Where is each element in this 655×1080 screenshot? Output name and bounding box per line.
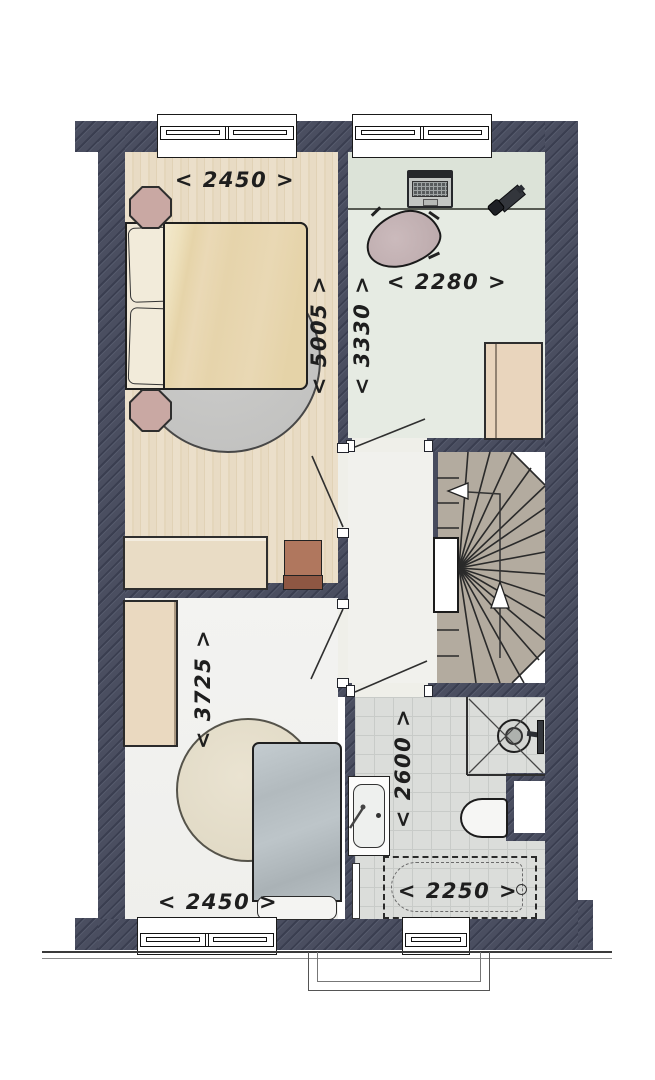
dim-bedroom2-width: < 2450 > [143, 890, 293, 914]
bedroom1-door-leaf [312, 456, 343, 527]
office-door-leaf [355, 419, 425, 447]
bathroom-door-leaf [355, 661, 427, 692]
bedroom2-door-leaf [311, 609, 343, 679]
stair-treads [437, 452, 545, 683]
dim-office-length: < 3330 > [350, 260, 374, 410]
stair-walk-line [448, 483, 509, 658]
dim-bathtub-width: < 2250 > [383, 879, 533, 903]
dim-bedroom1-length: < 5005 > [307, 260, 331, 410]
dim-office-width: < 2280 > [372, 270, 522, 294]
floor-plan: < 2450 > < 2280 > < 5005 > < 3330 > < 37… [0, 0, 655, 1080]
dim-bedroom2-length: < 3725 > [191, 614, 215, 764]
door-leaves [311, 419, 427, 692]
linework-overlay [0, 0, 655, 1080]
shower-diagonals [469, 699, 543, 773]
dim-bathroom-length: < 2600 > [391, 693, 415, 843]
stair-arrow-left [448, 483, 468, 499]
dim-bedroom1-width: < 2450 > [160, 168, 310, 192]
sink-faucet [350, 805, 366, 829]
